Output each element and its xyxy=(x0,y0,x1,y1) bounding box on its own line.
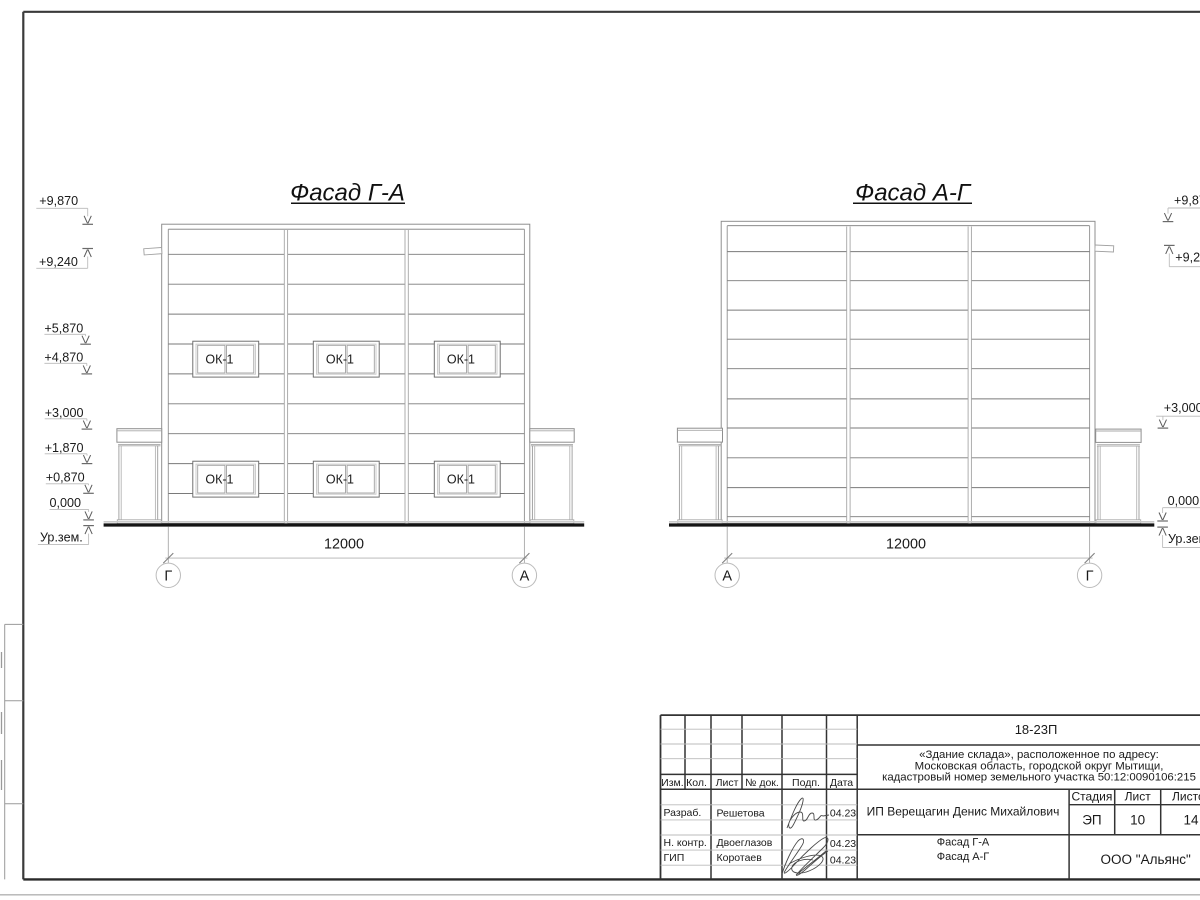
svg-text:10: 10 xyxy=(1130,813,1145,828)
svg-text:ООО "Альянс": ООО "Альянс" xyxy=(1101,852,1191,867)
svg-text:+3,000: +3,000 xyxy=(45,406,84,420)
svg-text:ИП Верещагин Денис Михайлович: ИП Верещагин Денис Михайлович xyxy=(867,805,1060,819)
svg-text:Разраб.: Разраб. xyxy=(664,807,702,819)
svg-text:Двоеглазов: Двоеглазов xyxy=(717,837,773,849)
svg-text:Г: Г xyxy=(164,569,172,585)
svg-text:ОК-1: ОК-1 xyxy=(326,473,354,487)
svg-text:Подп.: Подп. xyxy=(792,777,820,789)
svg-text:А: А xyxy=(722,569,732,585)
svg-text:+0,870: +0,870 xyxy=(46,470,85,484)
svg-text:Фасад Г-А: Фасад Г-А xyxy=(937,836,990,848)
svg-text:№ док.: № док. xyxy=(745,777,779,789)
svg-text:ОК-1: ОК-1 xyxy=(447,473,475,487)
svg-text:Кол.: Кол. xyxy=(686,777,707,789)
svg-text:ОК-1: ОК-1 xyxy=(205,473,233,487)
svg-text:кадастровый номер земельного у: кадастровый номер земельного участка 50:… xyxy=(882,772,1196,784)
svg-text:0,000: 0,000 xyxy=(1168,494,1200,508)
svg-text:+4,870: +4,870 xyxy=(44,350,83,364)
svg-text:Г: Г xyxy=(1086,569,1094,585)
svg-text:ЭП: ЭП xyxy=(1082,813,1101,828)
svg-text:+9,870: +9,870 xyxy=(39,194,78,208)
svg-text:+3,000: +3,000 xyxy=(1164,401,1200,415)
svg-text:Фасад А-Г: Фасад А-Г xyxy=(855,179,972,206)
svg-text:12000: 12000 xyxy=(324,537,364,553)
svg-text:Ур.зем.: Ур.зем. xyxy=(1168,532,1200,546)
svg-text:+9,870: +9,870 xyxy=(1174,194,1200,208)
svg-text:Решетова: Решетова xyxy=(717,808,765,820)
svg-text:Стадия: Стадия xyxy=(1071,789,1112,803)
svg-text:Московская область, городской: Московская область, городской округ Мыти… xyxy=(915,760,1164,772)
svg-text:+5,870: +5,870 xyxy=(44,322,83,336)
svg-text:ОК-1: ОК-1 xyxy=(447,353,475,367)
svg-text:Ур.зем.: Ур.зем. xyxy=(40,531,83,545)
svg-text:«Здание склада», расположенное: «Здание склада», расположенное по адресу… xyxy=(919,749,1159,761)
svg-text:+9,240: +9,240 xyxy=(1175,250,1200,264)
svg-text:Лист: Лист xyxy=(716,777,739,789)
svg-text:Фасад А-Г: Фасад А-Г xyxy=(937,851,990,863)
svg-text:0,000: 0,000 xyxy=(50,496,82,510)
svg-text:18-23П: 18-23П xyxy=(1015,722,1058,737)
svg-text:04.23: 04.23 xyxy=(830,855,856,867)
svg-text:Дата: Дата xyxy=(830,777,853,789)
svg-text:А: А xyxy=(520,569,530,585)
svg-text:14: 14 xyxy=(1183,813,1199,828)
svg-text:ГИП: ГИП xyxy=(664,852,685,864)
svg-text:+1,870: +1,870 xyxy=(45,441,84,455)
svg-text:Изм.: Изм. xyxy=(661,777,684,789)
svg-text:ОК-1: ОК-1 xyxy=(205,353,233,367)
svg-text:+9,240: +9,240 xyxy=(39,255,78,269)
svg-text:Н. контр.: Н. контр. xyxy=(664,837,707,849)
svg-text:Лист: Лист xyxy=(1125,789,1152,803)
svg-text:ОК-1: ОК-1 xyxy=(326,353,354,367)
svg-text:Листов: Листов xyxy=(1172,789,1200,803)
svg-text:04.23: 04.23 xyxy=(830,808,856,820)
svg-text:04.23: 04.23 xyxy=(830,838,856,850)
svg-text:12000: 12000 xyxy=(886,537,926,553)
svg-text:Коротаев: Коротаев xyxy=(717,852,763,864)
